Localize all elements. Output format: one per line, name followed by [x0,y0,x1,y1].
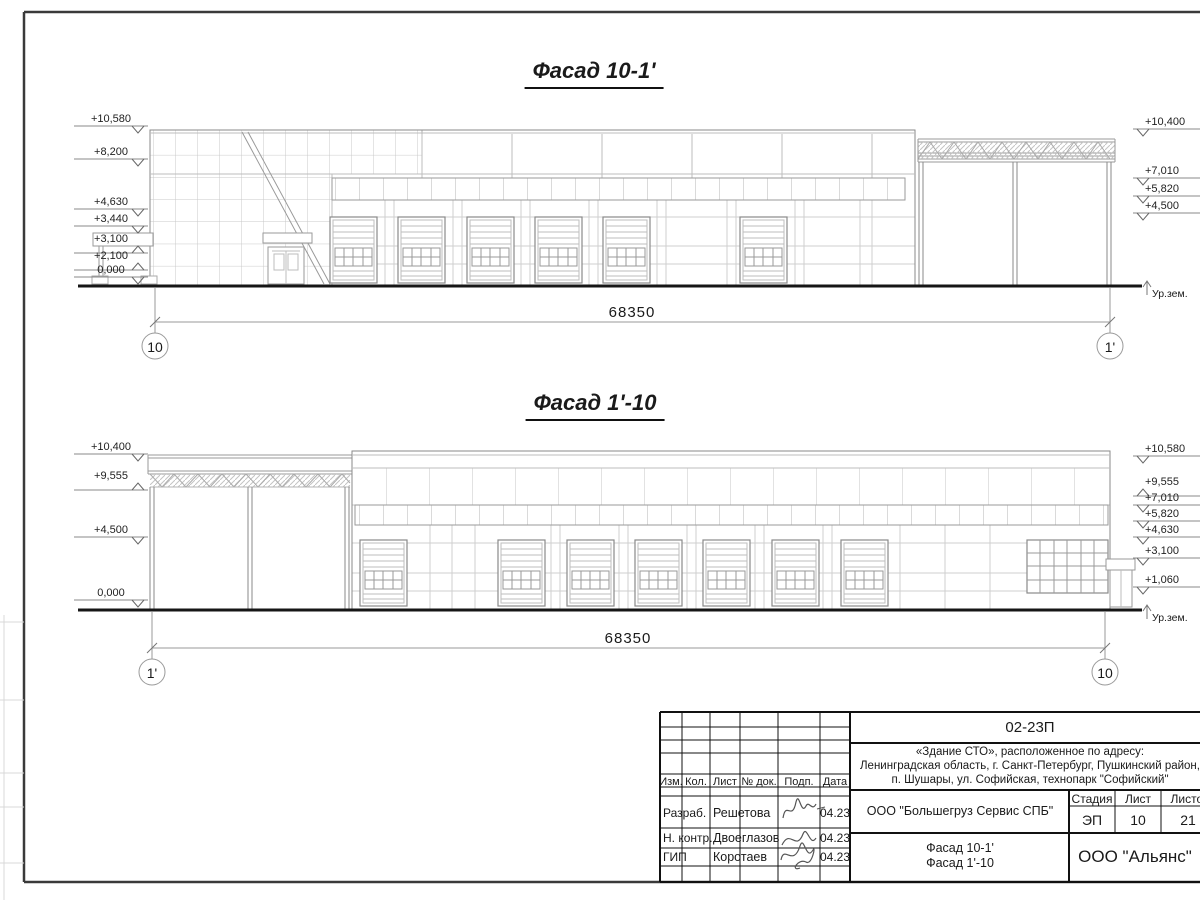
facade2-title: Фасад 1'-10 [526,390,665,421]
elevation-mark: +4,500 [1133,200,1200,221]
level-mark-icon [74,276,148,285]
tb-name: Решетова [713,806,770,820]
drawing-name-line: Фасад 10-1' [926,841,994,855]
address-line: п. Шушары, ул. Софийская, технопарк "Соф… [891,774,1168,786]
doc-number: 02-23П [1005,719,1054,736]
tb-name: Двоеглазов [713,831,779,845]
axis-bubble-label: 1' [1105,339,1115,355]
tb-name: Коротаев [713,850,767,864]
stage-value: ЭП [1082,812,1102,828]
dimension-line-f1 [142,288,1123,359]
tb-date: 04.23 [820,806,850,820]
elevation-mark: +10,580 [74,113,148,134]
dimension-text: 68350 [605,630,652,647]
elevation-mark: +3,100 [1133,545,1200,566]
elevation-mark: +4,500 [74,524,148,545]
tb-role: ГИП [663,850,687,864]
level-mark-icon [1133,212,1200,221]
level-mark-icon [74,482,148,491]
elevation-mark: +10,400 [74,441,148,462]
level-mark-icon [1133,455,1200,464]
elevation-mark: 0,000 [74,264,148,285]
adjacent-sheet-lines [0,615,24,900]
address-line: Ленинградская область, г. Санкт-Петербур… [860,760,1200,772]
canopy-left [148,455,352,609]
level-mark-icon [74,158,148,167]
tb-date: 04.23 [820,831,850,845]
tb-role: Н. контр. [663,831,713,845]
tb-col-list: Лист [713,776,737,788]
sheets-label: Листов [1171,792,1200,806]
dimension-text: 68350 [609,304,656,321]
facade1-title: Фасад 10-1' [525,58,664,89]
elevation-mark: +8,200 [74,146,148,167]
level-mark-icon [1133,586,1200,595]
tb-col-dok: № док. [741,776,776,788]
facade2-drawing [78,451,1151,685]
storefront-glazing [1027,540,1108,593]
level-mark-icon [1133,128,1200,137]
tb-col-izm: Изм. [659,776,683,788]
drawing-name-line: Фасад 1'-10 [926,856,994,870]
sheet-number: 10 [1130,812,1146,828]
elevation-mark: +10,580 [1133,443,1200,464]
tb-date: 04.23 [820,850,850,864]
company-name: ООО "Большегруз Сервис СПБ" [867,804,1054,818]
elevation-mark: +4,630 [1133,524,1200,545]
tb-col-kol: Кол. [685,776,707,788]
dimension-line-f2 [139,612,1118,685]
axis-bubble-label: 10 [1097,665,1113,681]
facade1-drawing [78,130,1151,359]
level-mark-icon [74,599,148,608]
elevation-mark: +1,060 [1133,574,1200,595]
axis-bubble-label: 10 [147,339,163,355]
elevation-mark: +10,400 [1133,116,1200,137]
tb-col-podp: Подп. [784,776,813,788]
level-mark-icon [74,125,148,134]
address-line: «Здание СТО», расположенное по адресу: [916,746,1144,758]
elevation-mark: 0,000 [74,587,148,608]
tb-col-data: Дата [823,776,847,788]
canopy-right [918,139,1115,285]
sheet-label: Лист [1125,792,1151,806]
stage-label: Стадия [1072,792,1113,806]
level-mark-icon [74,453,148,462]
signature-icon [781,799,825,869]
axis-bubble-label: 1' [147,665,157,681]
elevation-mark: +3,440 [74,213,148,234]
level-mark-icon [74,536,148,545]
sheets-total: 21 [1180,812,1196,828]
org-name: ООО "Альянс" [1078,847,1192,867]
level-mark-icon [1133,536,1200,545]
ground-level-label: Ур.зем. [1152,288,1188,300]
level-mark-icon [1133,557,1200,566]
tb-role: Разраб. [663,806,706,820]
elevation-mark: +9,555 [74,470,148,491]
ground-level-label: Ур.зем. [1152,612,1188,624]
